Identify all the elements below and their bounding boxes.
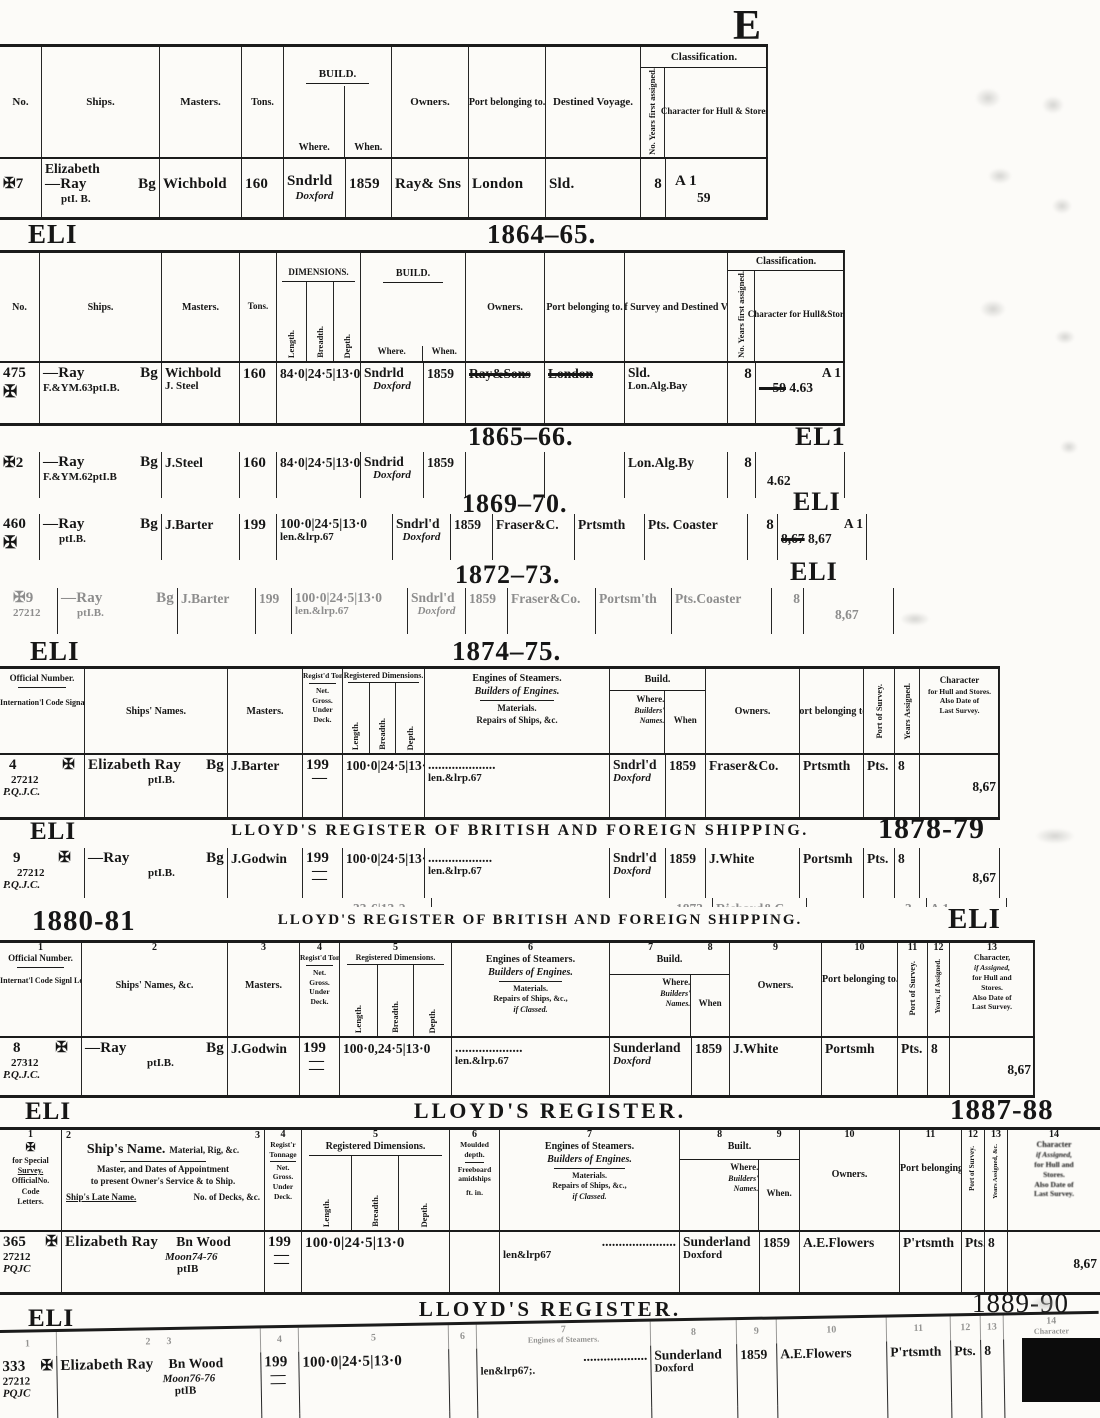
port-belonging: Portsm'th [599, 591, 657, 606]
col-ship-names: Ships' Names. [126, 705, 186, 718]
survey-voyage: Pts.Coaster [675, 591, 741, 606]
character-date: 8,67 [923, 779, 996, 794]
section-1864-65: No. Ships. Masters. Tons. DIMENSIONS. Le… [0, 250, 845, 426]
dimensions: 100·0|24·5|13·0 [302, 1353, 402, 1371]
col-tons: Tons. [248, 301, 268, 313]
build-where: Sunderland Doxford [680, 1232, 760, 1292]
edition-year: 1865–66. [468, 422, 574, 452]
col-built-group: 8 9 Built. Where. Builders' Names. When. [680, 1130, 800, 1230]
col-depth: Depth. [343, 334, 352, 358]
col-port: Port belonging to. [469, 96, 545, 109]
tons: 160 [245, 176, 268, 192]
col-character: Character [1034, 1326, 1069, 1337]
col-port: Port belonging to. [546, 301, 622, 314]
master: Wichbold [163, 176, 227, 192]
col-build-group: BUILD. Where. When. [361, 253, 466, 361]
col-port: 10 Port belonging to. [822, 943, 898, 1036]
page-code: ELI [30, 818, 76, 846]
owners: A.E.Flowers [803, 1235, 874, 1250]
row-1872-73: ✠9 27212 —RayBg ptI.B. J.Barter 199 100·… [10, 588, 894, 634]
col-owners: Owners. [735, 705, 771, 718]
edition-year: 1880-81 [32, 905, 136, 938]
port-belonging: London [472, 176, 523, 192]
row-1878-79: 9✠ 27212 P.Q.J.C. —RayBg ptI.B. J.Godwin… [0, 848, 1000, 898]
col-no: No. [12, 95, 28, 109]
owners: Ray& Sns [395, 176, 461, 192]
port-of-survey: Pts. [965, 1235, 985, 1250]
dimensions: 100·0,24·5|13·0 [343, 1041, 430, 1056]
entry-number: 333✠ 27212 PQJC [0, 1356, 58, 1418]
owners: A.E.Flowers [780, 1345, 852, 1361]
table-row: 8✠ 27312 P.Q.J.C. —RayBg ptI.B. J.Godwin… [0, 1038, 1033, 1095]
ship-name: Elizabeth RayBg ptI.B. [85, 755, 228, 817]
destined-voyage: Sld. [549, 176, 574, 192]
build-when: 1859 [740, 1347, 767, 1362]
character-date: 8,67 [1011, 1256, 1097, 1271]
maltese-cross-icon: ✠ [40, 1358, 53, 1375]
master: J.Godwin [231, 1041, 287, 1056]
col-tons: Tons. [251, 96, 274, 109]
col-port-of-survey: 12 Port of Survey. [962, 1130, 985, 1230]
maltese-cross-icon: ✠ [0, 1140, 61, 1156]
ship-name: —RayBg ptI.B. [40, 514, 162, 560]
master: Wichbold J. Steel [162, 363, 240, 423]
col-character: Character for Hull and Stores. Also Date… [920, 669, 1000, 753]
section-1880-81: 1 Official Number. Internat'l Code Signl… [0, 940, 1035, 1098]
tonnage: 199 — — [303, 848, 343, 898]
page-code: EL1 [795, 422, 846, 452]
entry-number: 460 ✠ [0, 514, 40, 560]
build-where: Sndrl'd Doxford [393, 514, 451, 560]
scan-edge-artifact [1022, 1338, 1100, 1402]
col-character: Character for Hull & Stores. [661, 106, 768, 118]
dimensions: 100·0|24·5|13·0 [346, 758, 425, 773]
col-breadth: Breadth. [316, 326, 325, 358]
rig: Bg [138, 176, 156, 193]
build-when: 1859 [427, 366, 454, 381]
section-1889-90: 1 2 3 4 5 6 7 Engines of Steamers. 8 9 1… [0, 1311, 1100, 1418]
entry-number: ✠2 [3, 455, 23, 471]
build-where: Sndrld Doxford [361, 363, 424, 423]
page-code: ELI [25, 1098, 71, 1126]
page-corner-letter: E [733, 2, 761, 50]
port-belonging: Portsmh [825, 1041, 875, 1056]
tonnage: 199 — — [300, 1038, 340, 1095]
col-years-assigned: 12 Years, if Assigned. [928, 943, 950, 1036]
maltese-cross-icon: ✠ [55, 1040, 68, 1057]
survey-voyage: Pts. Coaster [648, 517, 718, 532]
build-where: Sndrld Doxford [284, 159, 346, 217]
master: J.Barter [165, 517, 213, 532]
tons: 199 [259, 591, 279, 606]
col-moulded-depth: 6 Moulded depth. Freeboard amidships ft.… [450, 1130, 500, 1230]
row-1869-70: 460 ✠ —RayBg ptI.B. J.Barter 199 100·0|2… [0, 514, 867, 560]
ship-name: —RayBg ptI.B. [82, 1038, 228, 1095]
character: A 1 8,67 8,67 [778, 514, 867, 560]
page-code: ELI [793, 487, 841, 517]
tons: 199 [243, 517, 266, 533]
scanned-register-page: E No. Ships. Masters. Tons. BUILD. Where… [0, 0, 1100, 1418]
dimensions: 84·0|24·5|13·0 [280, 366, 360, 381]
port-of-survey: Pts. [901, 1041, 922, 1056]
col-owners: Owners. [487, 301, 523, 314]
col-port-of-survey: Port of Survey. [875, 684, 884, 739]
entry-number: 365✠ 27212 PQJC [0, 1232, 62, 1292]
col-port-of-survey: 11 Port of Survey. [898, 943, 928, 1036]
dimensions: 100·0|24·5|13·0 len.&lrp.67 [277, 514, 393, 560]
col-masters: Masters. [180, 95, 221, 109]
owners: J.White [709, 851, 754, 866]
col-owners: 9 Owners. [730, 943, 822, 1036]
col-build-where: Where. [378, 346, 406, 358]
dimensions: 100·0|24·5|13·0 [346, 851, 425, 866]
entry-number: 9✠ 27212 P.Q.J.C. [0, 848, 85, 898]
build-where: Sndrid Doxford [361, 452, 424, 498]
col-build-group: BUILD. Where. When. [284, 47, 392, 157]
col-build-group: 7 8 Build. Where. Builders' Names. When [610, 943, 730, 1036]
page-code: ELI [30, 636, 80, 667]
years-assigned: 8 [898, 758, 905, 773]
character-date: 59 [669, 190, 764, 205]
engines: .................... len.&lrp.67 [425, 755, 610, 817]
years-assigned: 8 [744, 455, 752, 471]
col-build-where: Where. [299, 141, 330, 154]
ship-name: Elizabeth —RayBg ptI. B. [42, 159, 160, 217]
engines: ................... len.&lrp.67 [425, 848, 610, 898]
years-assigned: 8 [984, 1343, 991, 1358]
builder-name: Doxford [364, 380, 420, 392]
character: A 1 59 [666, 159, 768, 217]
ship-name: —RayBg F.&YM.63ptI.B. [40, 363, 162, 423]
build-when: 1859 [669, 851, 696, 866]
build-when: 1859 [427, 455, 454, 470]
col-classification-group: Classification. No. Years first assigned… [641, 47, 768, 157]
col-engines: Engines of Steamers. [528, 1334, 599, 1346]
maltese-cross-icon: ✠ [62, 757, 75, 774]
master: J.Steel [165, 455, 203, 470]
character-date: 8,67 [953, 1062, 1031, 1077]
col-owners: 10 Owners. [800, 1130, 900, 1230]
col-masters: 3 Masters. [228, 943, 300, 1036]
port-of-survey: Pts. [867, 851, 888, 866]
build-when: 1859 [695, 1041, 722, 1056]
moulded-depth-empty [450, 1232, 500, 1292]
edition-year: 1872–73. [455, 560, 561, 590]
section-1887-88: 1 ✠ for Special Survey. OfficialNo. Code… [0, 1127, 1100, 1295]
col-voyage: Destined Voyage. [553, 95, 633, 109]
maltese-cross-icon: ✠ [3, 533, 36, 552]
maltese-cross-icon: ✠ [58, 850, 71, 867]
col-build-when: When. [432, 346, 457, 358]
build-where: Sndrl'd Doxford [610, 848, 666, 898]
build-when: 1859 [669, 758, 696, 773]
table-row: ✠7 Elizabeth —RayBg ptI. B. Wichbold 160… [0, 159, 766, 217]
years-assigned: 8 [898, 851, 905, 866]
years-assigned: 8 [931, 1041, 938, 1056]
port-belonging: Prtsmth [803, 758, 850, 773]
owners: Fraser&Co. [709, 758, 778, 773]
build-when: 1859 [349, 176, 380, 192]
build-when: 1859 [454, 517, 481, 532]
ship-name: Elizabeth RayBn Wood Moon76-76 ptIB [57, 1352, 262, 1418]
col-official-number: Official Number. Internation'l Code Sign… [0, 669, 85, 753]
tonnage: 199 — — [261, 1352, 300, 1415]
section-top-table: No. Ships. Masters. Tons. BUILD. Where. … [0, 44, 768, 220]
tonnage: 199 — — [265, 1232, 302, 1292]
row-1865-66: ✠2 —RayBg F.&YM.62ptI.B J.Steel 160 84·0… [0, 452, 845, 498]
entry-number: 475 ✠ [0, 363, 40, 423]
engines: ...................... len&lrp67 [500, 1232, 680, 1292]
ship-name: Elizabeth RayBn Wood Moon74-76 ptIB [62, 1232, 265, 1292]
tons: 160 [243, 455, 266, 471]
character: A 1 —59 4.63 [756, 363, 845, 423]
col-tonnage: Regist'd Tonnage Net. Gross. Under Deck. [303, 669, 343, 753]
years-assigned: 8 [793, 591, 800, 606]
dimensions: 100·0|24·5|13·0 len.&lrp.67 [292, 588, 408, 634]
owners: Fraser&C. [496, 517, 559, 532]
years-assigned: 8 [988, 1235, 995, 1250]
col-official-number: 1 Official Number. Internat'l Code Signl… [0, 943, 82, 1036]
port-of-survey: Pts. [867, 758, 888, 773]
page-code: ELI [28, 219, 78, 250]
col-ships: Ships. [86, 95, 114, 109]
table-row: 475 ✠ —RayBg F.&YM.63ptI.B. Wichbold J. … [0, 363, 843, 423]
edition-year: 1874–75. [452, 636, 561, 667]
years-assigned: 8 [744, 366, 752, 382]
table-row: 4✠ 27212 P.Q.J.C. Elizabeth RayBg ptI.B.… [0, 755, 998, 817]
build-when: 1859 [469, 591, 496, 606]
build-where: Sndrl'd Doxford [408, 588, 466, 634]
character-date: 8,67 [835, 607, 859, 622]
rig: Bg [140, 365, 158, 382]
entry-number: ✠7 [3, 176, 23, 192]
survey-voyage: Lon.Alg.By [628, 455, 694, 470]
section-1874-75: Official Number. Internation'l Code Sign… [0, 666, 1000, 820]
col-tonnage: 4 Regist'd Tonnage Net. Gross. Under Dec… [300, 943, 340, 1036]
owners: Ray&Sons [469, 366, 531, 381]
dimensions: 84·0|24·5|13·0 [280, 455, 360, 470]
col-ship-name: 23 Ship's Name. Material, Rig, &c. Maste… [62, 1130, 265, 1230]
register-title: LLOYD'S REGISTER OF BRITISH AND FOREIGN … [240, 912, 840, 929]
maltese-cross-icon: ✠ [3, 382, 36, 401]
dimensions: 100·0|24·5|13·0 [305, 1235, 405, 1251]
character-date: 4.62 [767, 473, 791, 488]
builder-name: Doxford [287, 190, 342, 202]
moulded-depth-empty [449, 1349, 478, 1411]
col-port: 11 Port belonging to. [900, 1130, 962, 1230]
owners: Fraser&Co. [511, 591, 580, 606]
col-character: 14 Character if Assigned, for Hull and S… [1008, 1130, 1100, 1230]
ship-name: —RayBg ptI.B. [58, 588, 178, 634]
port-belonging: Prtsmth [578, 517, 625, 532]
col-no: No. [12, 301, 27, 314]
col-dimensions-group: Registered Dimensions. Length. Breadth. … [343, 669, 425, 753]
table-row: 365✠ 27212 PQJC Elizabeth RayBn Wood Moo… [0, 1232, 1100, 1292]
survey-voyage: Sld. Lon.Alg.Bay [625, 363, 728, 423]
build-when: 1859 [763, 1235, 790, 1250]
col-years-assigned: 13 Years Assigned, &c. [985, 1130, 1008, 1230]
col-ships: Ships. [88, 301, 114, 314]
col-engines: Engines of Steamers. Builders of Engines… [425, 669, 610, 753]
character-date: 4.63 [789, 380, 813, 395]
register-title: LLOYD'S REGISTER. [300, 1098, 800, 1124]
master: J.Barter [181, 591, 229, 606]
col-character: Character for Hull&Stores [748, 309, 845, 321]
master: J.Godwin [231, 851, 287, 866]
col-port: Port belonging to. [800, 705, 864, 718]
edition-year: 1887-88 [950, 1094, 1054, 1127]
col-official-number: 1 ✠ for Special Survey. OfficialNo. Code… [0, 1130, 62, 1230]
entry-number: 4✠ 27212 P.Q.J.C. [0, 755, 85, 817]
edition-year: 1878-79 [878, 812, 985, 846]
col-years-assigned: No. Years first assigned. [737, 271, 746, 358]
row-fragment: 33·6|13·2 1873 Richard&C 3 A 1 [0, 898, 1007, 907]
col-owners: Owners. [410, 95, 449, 109]
ship-name: —RayBg ptI.B. [85, 848, 228, 898]
master: J.Barter [231, 758, 279, 773]
port-belonging: P'rtsmth [903, 1235, 954, 1250]
col-tonnage: 4 Regist'r Tonnage Net. Gross. Under Dec… [265, 1130, 302, 1230]
maltese-cross-icon: ✠ [45, 1234, 58, 1251]
col-masters: Masters. [182, 301, 219, 314]
col-length: Length. [287, 330, 296, 358]
entry-number: ✠9 27212 [10, 588, 58, 634]
entry-number: 8✠ 27312 P.Q.J.C. [0, 1038, 82, 1095]
col-engines: 7 Engines of Steamers. Builders of Engin… [500, 1130, 680, 1230]
owners: J.White [733, 1041, 778, 1056]
col-build-when: When. [354, 141, 382, 154]
ship-name: —RayBg F.&YM.62ptI.B [40, 452, 162, 498]
tonnage: 199 — [303, 755, 343, 817]
col-masters: Masters. [247, 705, 284, 718]
page-code: ELI [790, 557, 838, 587]
col-dimensions-group: 5 Registered Dimensions. Length. Breadth… [340, 943, 452, 1036]
col-engines: 6 Engines of Steamers. Builders of Engin… [452, 943, 610, 1036]
col-years-assigned: No. Years first assigned. [648, 68, 657, 155]
port-belonging: London [548, 366, 593, 381]
port-of-survey: Pts. [954, 1343, 976, 1358]
col-dimensions-group: 5 Registered Dimensions. Length. Breadth… [302, 1130, 450, 1230]
tons: 160 [243, 366, 266, 382]
build-where: Sunderland Doxford [610, 1038, 692, 1095]
col-build-group: Build. Where. Builders' Names. When [610, 669, 706, 753]
col-classification-group: Classification. No. Years first assigned… [728, 253, 845, 361]
col-dimensions-group: DIMENSIONS. Length. Breadth. Depth. [277, 253, 361, 361]
engines: .................... len.&lrp.67 [452, 1038, 610, 1095]
port-belonging: P'rtsmth [890, 1344, 941, 1360]
col-survey-voyage: Port of Survey and Destined Voyage. [625, 301, 728, 314]
col-ship-names: 2 Ships' Names, &c. [82, 943, 228, 1036]
col-years-assigned: Years Assigned. [903, 683, 912, 740]
years-assigned: 8 [766, 517, 774, 533]
register-title: LLOYD'S REGISTER OF BRITISH AND FOREIGN … [190, 822, 850, 840]
build-where: Sunderland Doxford [651, 1344, 738, 1407]
port-belonging: Portsmh [803, 851, 853, 866]
engines: ................... len&lrp67;. [477, 1346, 652, 1411]
page-code: ELI [948, 903, 1001, 936]
col-character: 13 Character, if Assigned, for Hull and … [950, 943, 1035, 1036]
character-date: 8,67 [923, 870, 996, 885]
years-assigned: 8 [654, 176, 662, 192]
build-where: Sndrl'd Doxford [610, 755, 666, 817]
edition-year: 1864–65. [487, 219, 596, 250]
